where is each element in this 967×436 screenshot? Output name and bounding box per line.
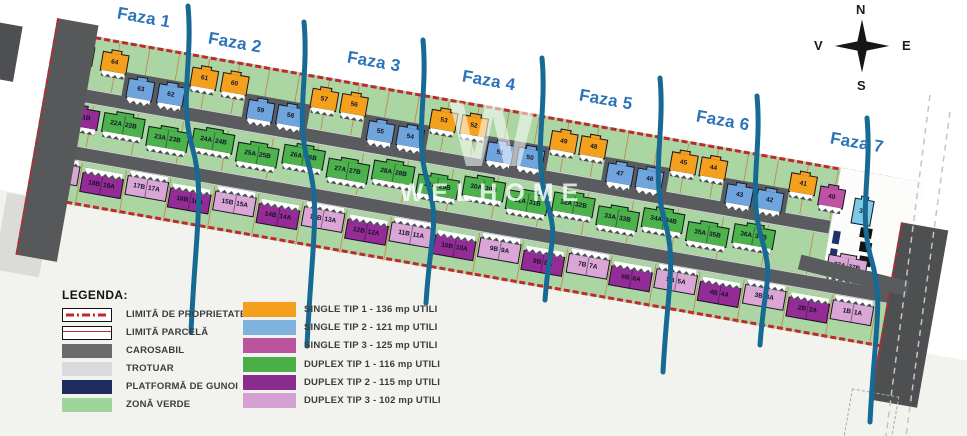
legend-label: DUPLEX TIP 3 - 102 mp UTILI <box>304 395 441 406</box>
house-40[interactable]: 40 <box>817 185 846 209</box>
house-label: 45 <box>679 159 687 167</box>
house-label: 39 <box>858 208 866 216</box>
house-label: 28B <box>394 170 407 178</box>
house-label: 16A <box>191 198 204 206</box>
house-label: 24B <box>214 138 227 146</box>
house-label: 14B <box>264 211 277 219</box>
house-60[interactable]: 60 <box>219 72 249 96</box>
road-corner-left <box>0 22 23 82</box>
legend-title: LEGENDA: <box>62 288 247 302</box>
house-label: 48 <box>589 144 597 152</box>
legend-label: TROTUAR <box>126 363 174 374</box>
legend-row: LIMITĂ PARCELĂ <box>62 325 247 340</box>
house-label: 5A <box>677 279 686 287</box>
legend-row: CAROSABIL <box>62 343 247 358</box>
house-52[interactable]: 52 <box>459 114 489 138</box>
house-label: 16B <box>176 196 189 204</box>
compass-east: E <box>902 38 911 53</box>
house-label: 56 <box>350 101 358 109</box>
legend-swatch <box>62 380 112 394</box>
house-label: 8A <box>544 260 553 268</box>
house-label: 53 <box>440 117 448 125</box>
house-label: 4B <box>709 290 718 298</box>
house-label: 51 <box>496 149 504 157</box>
house-57[interactable]: 57 <box>309 88 339 112</box>
house-55[interactable]: 55 <box>365 120 395 144</box>
house-49[interactable]: 49 <box>549 130 579 154</box>
legend-row: ZONĂ VERDE <box>62 397 247 412</box>
house-48[interactable]: 48 <box>579 135 609 159</box>
house-label: 28A <box>380 168 393 176</box>
legend-swatch <box>243 393 296 408</box>
legend-swatch <box>243 357 296 372</box>
house-label: 57 <box>320 96 328 104</box>
house-label: 47 <box>616 171 624 179</box>
legend-swatch <box>243 302 296 317</box>
house-43[interactable]: 43 <box>724 183 754 207</box>
legend-row: DUPLEX TIP 2 - 115 mp UTILI <box>243 375 441 390</box>
house-label: 15B <box>221 198 234 206</box>
phase-label-6: Faza 6 <box>695 106 751 135</box>
house-label: 27A <box>334 166 347 174</box>
house-label: 41 <box>799 181 807 189</box>
house-label: 42 <box>765 197 773 205</box>
house-51[interactable]: 51 <box>485 141 515 165</box>
legend-row: SINGLE TIP 1 - 136 mp UTILI <box>243 302 441 317</box>
house-label: 59 <box>256 107 264 115</box>
legend-row: DUPLEX TIP 1 - 116 mp UTILI <box>243 357 441 372</box>
house-label: 32A <box>560 199 573 207</box>
legend-swatch <box>62 362 112 376</box>
house-label: 30B <box>484 186 497 194</box>
house-53[interactable]: 53 <box>429 109 459 133</box>
house-label: 34B <box>664 218 677 226</box>
house-label: 2A <box>808 307 817 315</box>
house-58[interactable]: 58 <box>275 104 305 128</box>
house-label: 18A <box>102 183 115 191</box>
house-61[interactable]: 61 <box>189 67 219 91</box>
house-label: 30A <box>470 183 483 191</box>
house-label: 5B <box>666 277 675 285</box>
house-label: 10A <box>455 245 468 253</box>
legend-row: DUPLEX TIP 3 - 102 mp UTILI <box>243 393 441 408</box>
house-42[interactable]: 42 <box>754 189 784 213</box>
compass-rose: N V E S <box>810 2 914 97</box>
house-label: 6A <box>632 276 641 284</box>
phase-label-1: Faza 1 <box>116 3 172 32</box>
house-50[interactable]: 50 <box>515 146 545 170</box>
legend-swatch <box>62 308 112 322</box>
house-label: 12A <box>367 229 380 237</box>
house-label: 36A <box>740 231 753 239</box>
legend-swatch <box>62 344 112 358</box>
house-label: 23A <box>154 134 167 142</box>
house-label: 8B <box>532 258 541 266</box>
legend-row: LIMITĂ DE PROPRIETATE <box>62 307 247 322</box>
house-label: 44 <box>709 165 717 173</box>
house-label: 64 <box>110 59 118 67</box>
house-label: 31A <box>514 197 527 205</box>
house-label: 26B <box>304 154 317 162</box>
house-56[interactable]: 56 <box>339 93 369 117</box>
house-label: 58 <box>286 112 294 120</box>
house-label: 9B <box>489 246 498 254</box>
house-label: 13B <box>309 214 322 222</box>
house-label: 61 <box>200 75 208 83</box>
house-47[interactable]: 47 <box>605 162 635 186</box>
house-62[interactable]: 62 <box>156 83 186 107</box>
house-label: 33A <box>604 213 617 221</box>
house-label: 54 <box>406 134 414 142</box>
house-label: 15A <box>236 201 249 209</box>
legend-label: SINGLE TIP 3 - 125 mp UTILI <box>304 340 438 351</box>
legend-row: TROTUAR <box>62 361 247 376</box>
legend-swatch <box>62 326 112 340</box>
house-label: 11A <box>412 232 425 240</box>
house-label: 33B <box>618 216 631 224</box>
house-64[interactable]: 64 <box>100 51 130 75</box>
house-label: 25A <box>244 150 257 158</box>
house-label: 14A <box>279 214 292 222</box>
house-label: 62 <box>167 91 175 99</box>
house-label: 17B <box>133 183 146 191</box>
compass-west: V <box>814 38 823 53</box>
legend-label: PLATFORMĂ DE GUNOI <box>126 381 238 392</box>
house-label: 1B <box>842 308 851 316</box>
house-label: 12B <box>352 227 365 235</box>
house-44[interactable]: 44 <box>698 156 728 180</box>
house-label: 63 <box>137 86 145 94</box>
house-label: 22A <box>110 120 123 128</box>
house-label: 3A <box>765 294 774 302</box>
house-label: 13A <box>324 217 337 225</box>
legend-label: SINGLE TIP 1 - 136 mp UTILI <box>304 304 438 315</box>
legend-label: ZONĂ VERDE <box>126 399 190 410</box>
phase-label-5: Faza 5 <box>578 85 634 114</box>
house-label: 11B <box>398 230 411 238</box>
house-45[interactable]: 45 <box>668 151 698 175</box>
house-label: 34A <box>650 215 663 223</box>
legend-swatch <box>62 398 112 412</box>
house-46[interactable]: 46 <box>635 167 665 191</box>
house-label: 18B <box>88 180 101 188</box>
house-label: 24A <box>200 136 213 144</box>
phase-label-2: Faza 2 <box>207 28 263 57</box>
house-59[interactable]: 59 <box>245 99 275 123</box>
legend-label: DUPLEX TIP 2 - 115 mp UTILI <box>304 377 440 388</box>
house-label: 27B <box>348 168 361 176</box>
phase-label-4: Faza 4 <box>461 66 517 95</box>
phase-label-3: Faza 3 <box>346 47 402 76</box>
legend-label: LIMITĂ DE PROPRIETATE <box>126 309 247 320</box>
house-label: 49 <box>560 138 568 146</box>
compass-star-icon <box>833 15 891 77</box>
legend-label: SINGLE TIP 2 - 121 mp UTILI <box>304 322 438 333</box>
house-label: 1A <box>853 310 862 318</box>
legend-label: LIMITĂ PARCELĂ <box>126 327 208 338</box>
house-label: 36B <box>754 234 767 242</box>
house-label: 22B <box>124 123 137 131</box>
legend-row: SINGLE TIP 2 - 121 mp UTILI <box>243 320 441 335</box>
house-label: 26A <box>290 152 303 160</box>
house-label: 46 <box>646 176 654 184</box>
house-label: 23B <box>168 136 181 144</box>
house-54[interactable]: 54 <box>395 125 425 149</box>
legend-label: DUPLEX TIP 1 - 116 mp UTILI <box>304 359 440 370</box>
phase-label-7: Faza 7 <box>829 128 885 157</box>
legend-right-column: SINGLE TIP 1 - 136 mp UTILI SINGLE TIP 2… <box>243 302 441 411</box>
house-label: 32B <box>574 202 587 210</box>
house-label: 7A <box>589 263 598 271</box>
parking-pad <box>859 227 873 239</box>
house-label: 17A <box>147 185 160 193</box>
house-label: 35B <box>708 232 721 240</box>
house-label: 29B <box>438 184 451 192</box>
legend-swatch <box>243 338 296 353</box>
house-63[interactable]: 63 <box>126 78 156 102</box>
legend-row: SINGLE TIP 3 - 125 mp UTILI <box>243 338 441 353</box>
parking-pad <box>859 241 873 253</box>
house-label: 7B <box>577 261 586 269</box>
legend-label: CAROSABIL <box>126 345 184 356</box>
house-label: 9A <box>500 248 509 256</box>
house-label: 4A <box>720 292 729 300</box>
house-label: 35A <box>694 229 707 237</box>
house-label: 6B <box>621 274 630 282</box>
house-label: 10B <box>441 242 454 250</box>
house-label: 52 <box>470 122 478 130</box>
house-label: 29A <box>424 181 437 189</box>
house-label: 60 <box>230 80 238 88</box>
site-plan-page: 6564636261605958575655545352515049484746… <box>0 0 967 436</box>
house-label: 2B <box>797 305 806 313</box>
legend-left-column: LIMITĂ DE PROPRIETATE LIMITĂ PARCELĂ CAR… <box>62 307 247 412</box>
house-label: 25B <box>258 152 271 160</box>
house-label: 50 <box>526 155 534 163</box>
house-label: 31B <box>528 200 541 208</box>
house-label: 43 <box>735 192 743 200</box>
house-41[interactable]: 41 <box>788 172 818 196</box>
legend-row: PLATFORMĂ DE GUNOI <box>62 379 247 394</box>
house-label: 40 <box>827 194 835 202</box>
legend-swatch <box>243 320 296 335</box>
house-label: 3B <box>754 292 763 300</box>
compass-south: S <box>857 78 866 93</box>
legend-swatch <box>243 375 296 390</box>
legend: LEGENDA: LIMITĂ DE PROPRIETATE LIMITĂ PA… <box>62 288 247 415</box>
house-label: 55 <box>376 128 384 136</box>
